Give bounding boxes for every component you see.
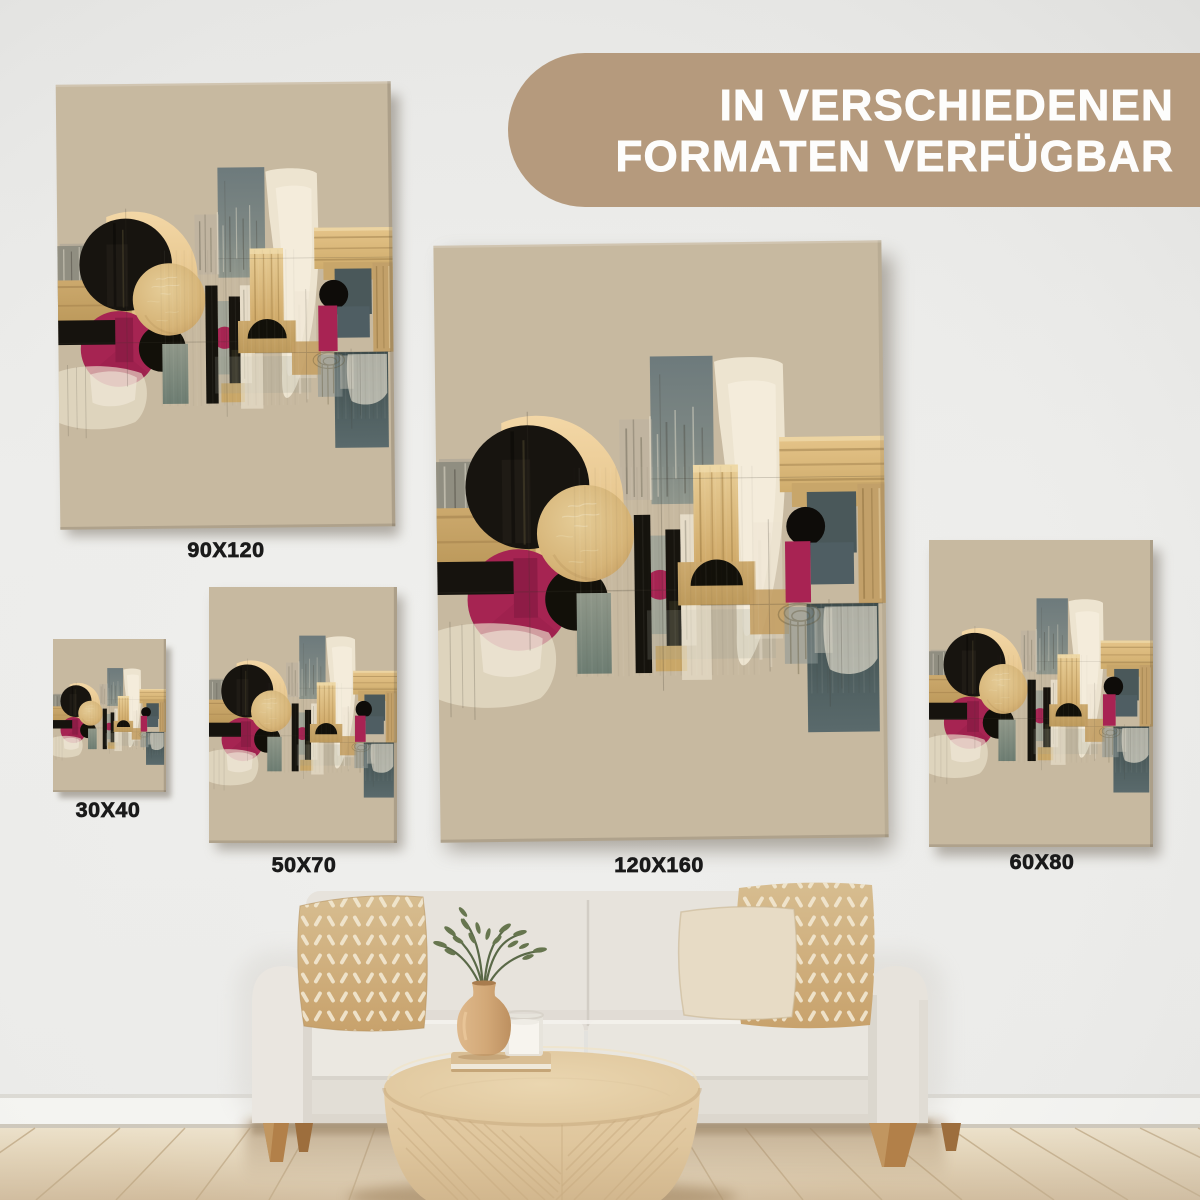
svg-text:120X160: 120X160 [614,853,704,877]
svg-text:90X120: 90X120 [187,538,264,562]
svg-text:FORMATEN VERFÜGBAR: FORMATEN VERFÜGBAR [615,132,1174,181]
svg-text:50X70: 50X70 [272,853,337,877]
svg-text:60X80: 60X80 [1010,850,1075,874]
svg-text:30X40: 30X40 [76,798,141,822]
svg-text:IN VERSCHIEDENEN: IN VERSCHIEDENEN [720,81,1174,130]
